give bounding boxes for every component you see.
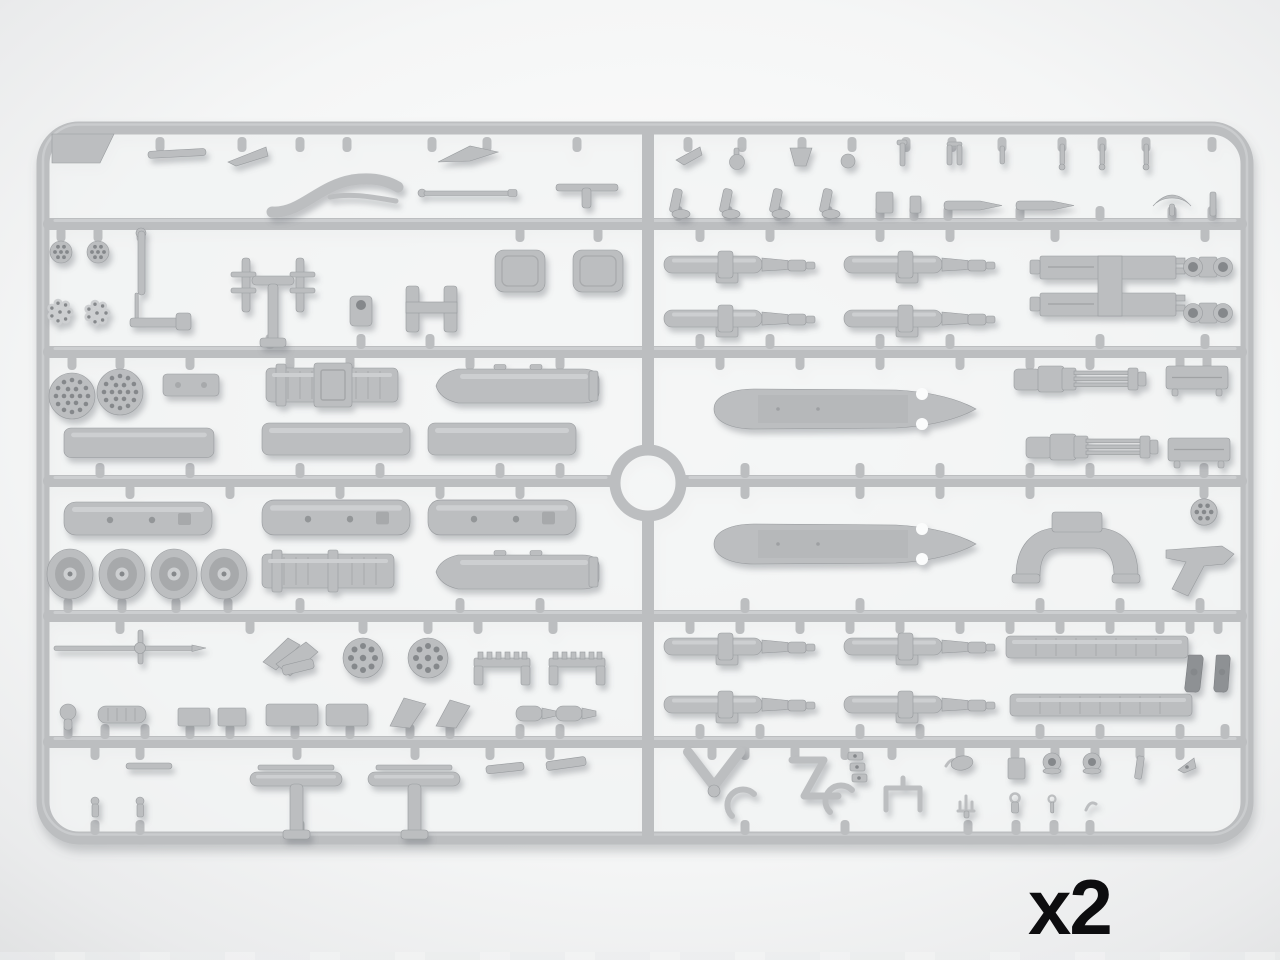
part-rocket-pod-half [436, 365, 599, 404]
part-ring-box [350, 296, 372, 326]
part-ribbed-launcher-with-box [266, 363, 398, 407]
sprue-frame [43, 125, 1247, 839]
sprue-image [0, 0, 1280, 960]
part-holed-disc [1191, 499, 1217, 525]
part-ribbed-launcher [262, 550, 394, 592]
part-stud-bar [163, 374, 219, 396]
part-large-tubes [64, 423, 576, 457]
part-thin-strip [126, 763, 172, 769]
quantity-label: x2 [1028, 868, 1111, 946]
part-rocket-pod-half-2 [436, 551, 599, 590]
part-peg [1210, 192, 1216, 216]
product-photo-scene: x2 [0, 0, 1280, 960]
part-rocket-bodies-with-studs [64, 500, 576, 535]
next-image-edge [0, 952, 1280, 960]
